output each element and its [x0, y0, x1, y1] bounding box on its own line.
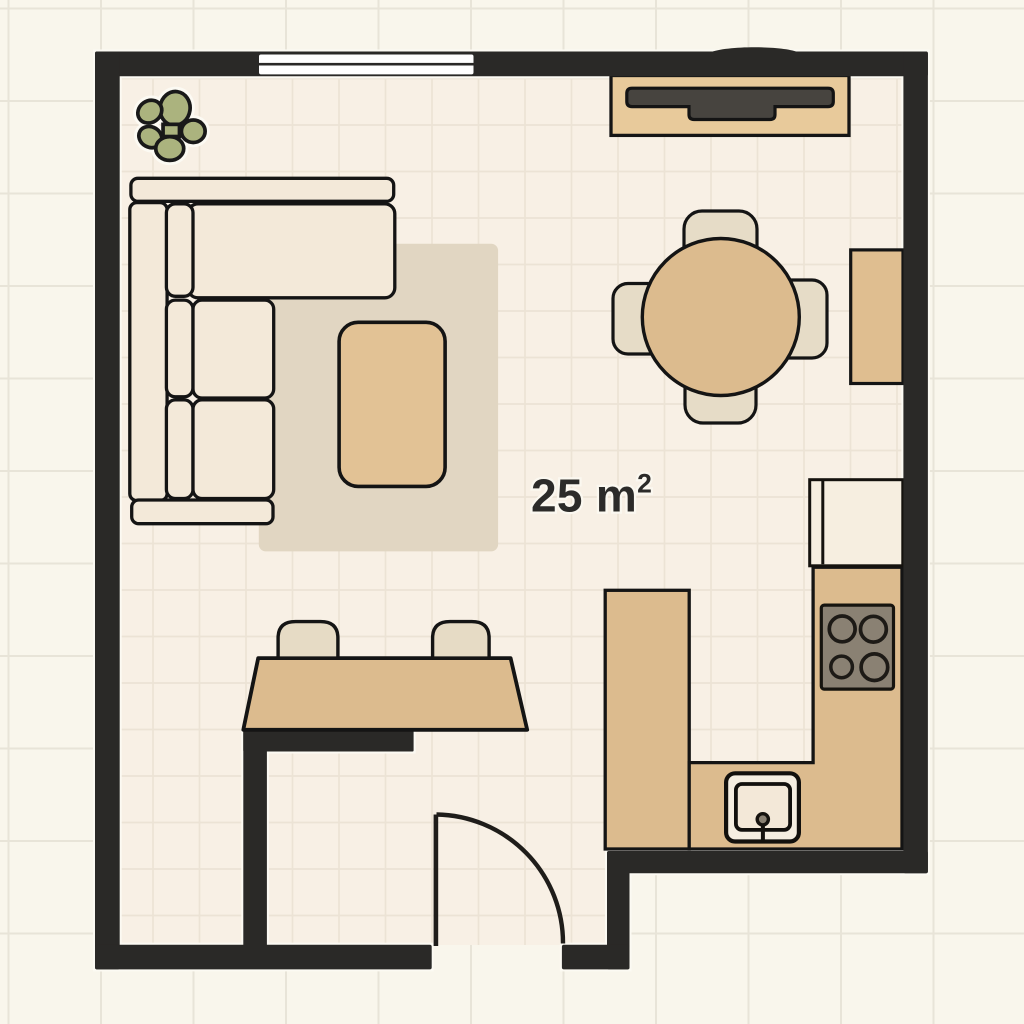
- svg-text:25 m2: 25 m2: [531, 469, 652, 522]
